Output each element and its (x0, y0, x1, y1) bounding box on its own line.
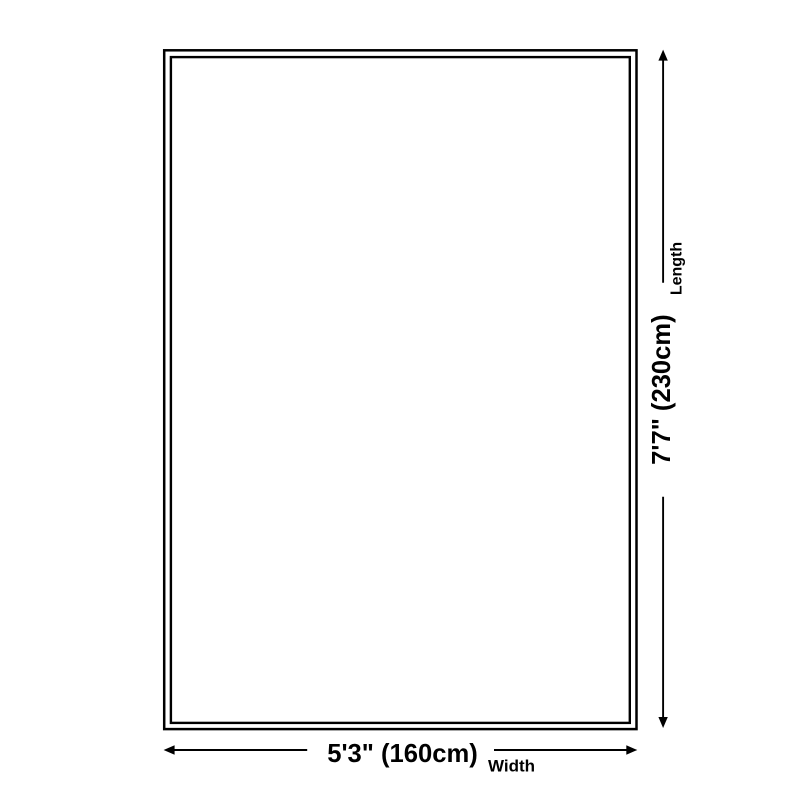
svg-text:Width: Width (488, 756, 535, 775)
svg-text:Length: Length (669, 242, 686, 295)
svg-text:5'3" (160cm): 5'3" (160cm) (327, 740, 478, 768)
svg-text:7'7" (230cm): 7'7" (230cm) (648, 314, 676, 465)
